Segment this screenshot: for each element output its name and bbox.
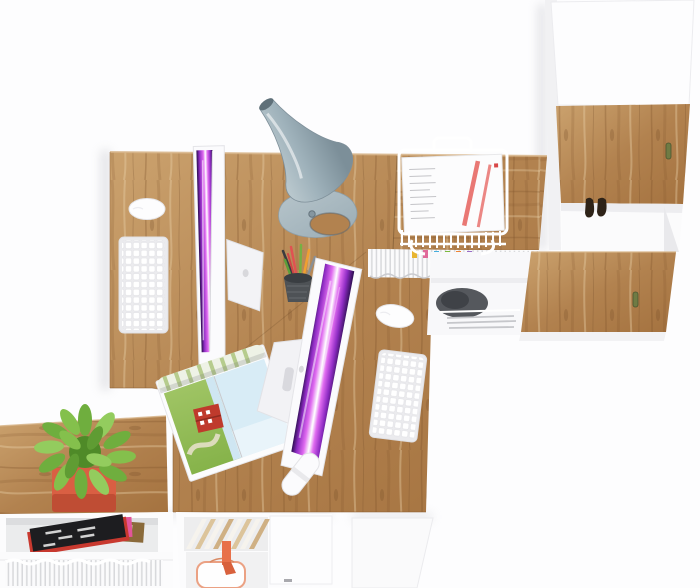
shelf-door-handle [284, 579, 292, 582]
lamp-base-cutout [310, 213, 350, 235]
keyboard-1 [119, 237, 168, 333]
shelf-center-door [270, 516, 332, 584]
gift-bag-body [197, 562, 245, 588]
render-stage [0, 0, 700, 588]
paper-red-mark [494, 163, 498, 167]
keyboard-2 [369, 349, 427, 442]
shadow-desk-left-edge [101, 150, 110, 390]
cabinet-door-bottom-grain [521, 252, 676, 332]
shelf-left-divider [0, 552, 173, 560]
ribbon [222, 541, 231, 565]
leaf [78, 404, 92, 436]
mouse-1 [129, 199, 165, 220]
keyboard1-keys [122, 240, 165, 330]
shelf-center [176, 512, 332, 588]
scene [0, 0, 700, 588]
lamp-screw [309, 211, 315, 217]
cabinet-top [551, 0, 694, 106]
pedestal-shade [431, 278, 536, 283]
cabinet-handle-top [666, 143, 671, 159]
pedestal-shelf [427, 252, 538, 335]
cup-rim [284, 273, 312, 283]
dark-bag-shade [441, 291, 469, 309]
cabinet-base-strip [519, 332, 666, 341]
shelf-left [0, 512, 173, 588]
mouse1-body [129, 199, 165, 220]
cabinet-handle-bottom [633, 292, 638, 307]
tray-papers [402, 154, 505, 233]
